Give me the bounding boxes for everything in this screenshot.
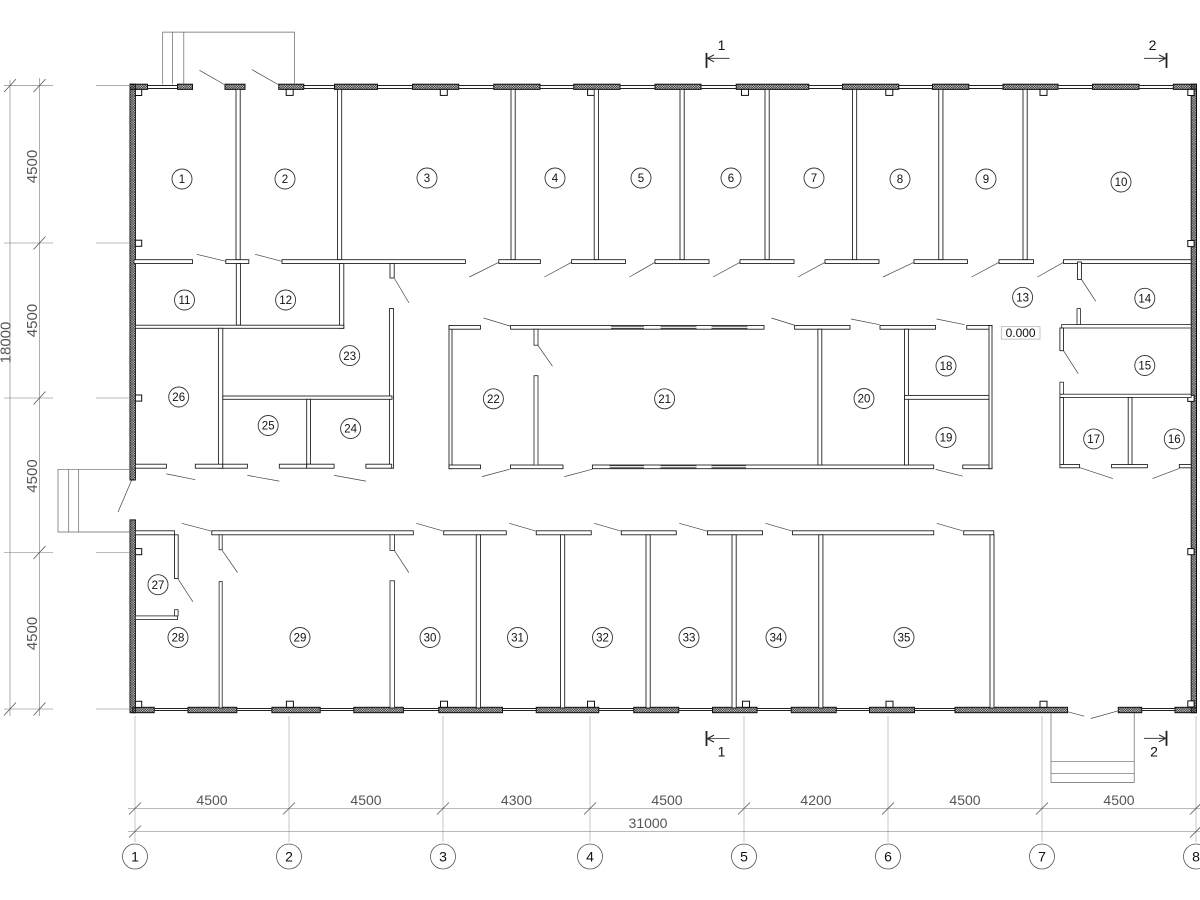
svg-text:4500: 4500: [350, 792, 381, 808]
svg-text:3: 3: [424, 173, 430, 185]
svg-text:20: 20: [858, 394, 871, 406]
svg-text:16: 16: [1168, 434, 1181, 446]
svg-text:14: 14: [1138, 294, 1151, 306]
svg-text:7: 7: [811, 173, 817, 185]
svg-text:8: 8: [897, 174, 903, 186]
svg-text:30: 30: [424, 633, 437, 645]
svg-text:4500: 4500: [24, 150, 41, 183]
svg-text:35: 35: [898, 633, 911, 645]
svg-text:33: 33: [683, 633, 696, 645]
svg-text:9: 9: [983, 174, 989, 186]
svg-text:1: 1: [718, 37, 726, 53]
svg-text:0.000: 0.000: [1006, 326, 1036, 340]
svg-text:5: 5: [638, 173, 644, 185]
svg-text:13: 13: [1016, 293, 1029, 305]
svg-text:4300: 4300: [501, 792, 532, 808]
svg-text:6: 6: [884, 849, 892, 865]
svg-text:4: 4: [586, 849, 594, 865]
svg-text:4500: 4500: [196, 792, 227, 808]
svg-text:31: 31: [511, 633, 524, 645]
svg-text:17: 17: [1087, 434, 1100, 446]
svg-text:32: 32: [596, 633, 609, 645]
svg-text:2: 2: [285, 849, 293, 865]
svg-text:28: 28: [172, 633, 185, 645]
svg-text:4500: 4500: [1103, 792, 1134, 808]
svg-text:7: 7: [1038, 849, 1046, 865]
svg-text:1: 1: [179, 174, 185, 186]
svg-text:4500: 4500: [24, 304, 41, 337]
svg-text:2: 2: [282, 174, 288, 186]
svg-text:23: 23: [343, 351, 356, 363]
svg-text:22: 22: [487, 394, 500, 406]
svg-text:31000: 31000: [629, 815, 668, 831]
svg-text:18000: 18000: [0, 322, 15, 364]
svg-text:25: 25: [262, 421, 275, 433]
svg-text:2: 2: [1150, 744, 1158, 760]
svg-text:1: 1: [718, 744, 726, 760]
svg-text:24: 24: [344, 424, 357, 436]
svg-text:5: 5: [740, 849, 748, 865]
svg-text:4500: 4500: [24, 459, 41, 492]
svg-text:11: 11: [179, 295, 191, 307]
svg-text:2: 2: [1149, 37, 1157, 53]
svg-text:3: 3: [439, 849, 447, 865]
svg-text:4500: 4500: [949, 792, 980, 808]
svg-text:12: 12: [279, 295, 292, 307]
svg-text:34: 34: [770, 633, 783, 645]
svg-text:19: 19: [940, 433, 953, 445]
svg-text:4: 4: [552, 173, 559, 185]
svg-text:4500: 4500: [651, 792, 682, 808]
svg-text:26: 26: [172, 392, 185, 404]
svg-text:4500: 4500: [24, 617, 41, 650]
svg-text:29: 29: [294, 633, 307, 645]
svg-text:8: 8: [1192, 849, 1200, 865]
svg-text:18: 18: [940, 361, 953, 373]
svg-text:27: 27: [152, 580, 165, 592]
svg-text:10: 10: [1115, 177, 1128, 189]
svg-text:6: 6: [728, 173, 734, 185]
svg-text:21: 21: [658, 394, 671, 406]
svg-text:15: 15: [1138, 361, 1151, 373]
svg-text:4200: 4200: [800, 792, 831, 808]
svg-text:1: 1: [131, 849, 139, 865]
